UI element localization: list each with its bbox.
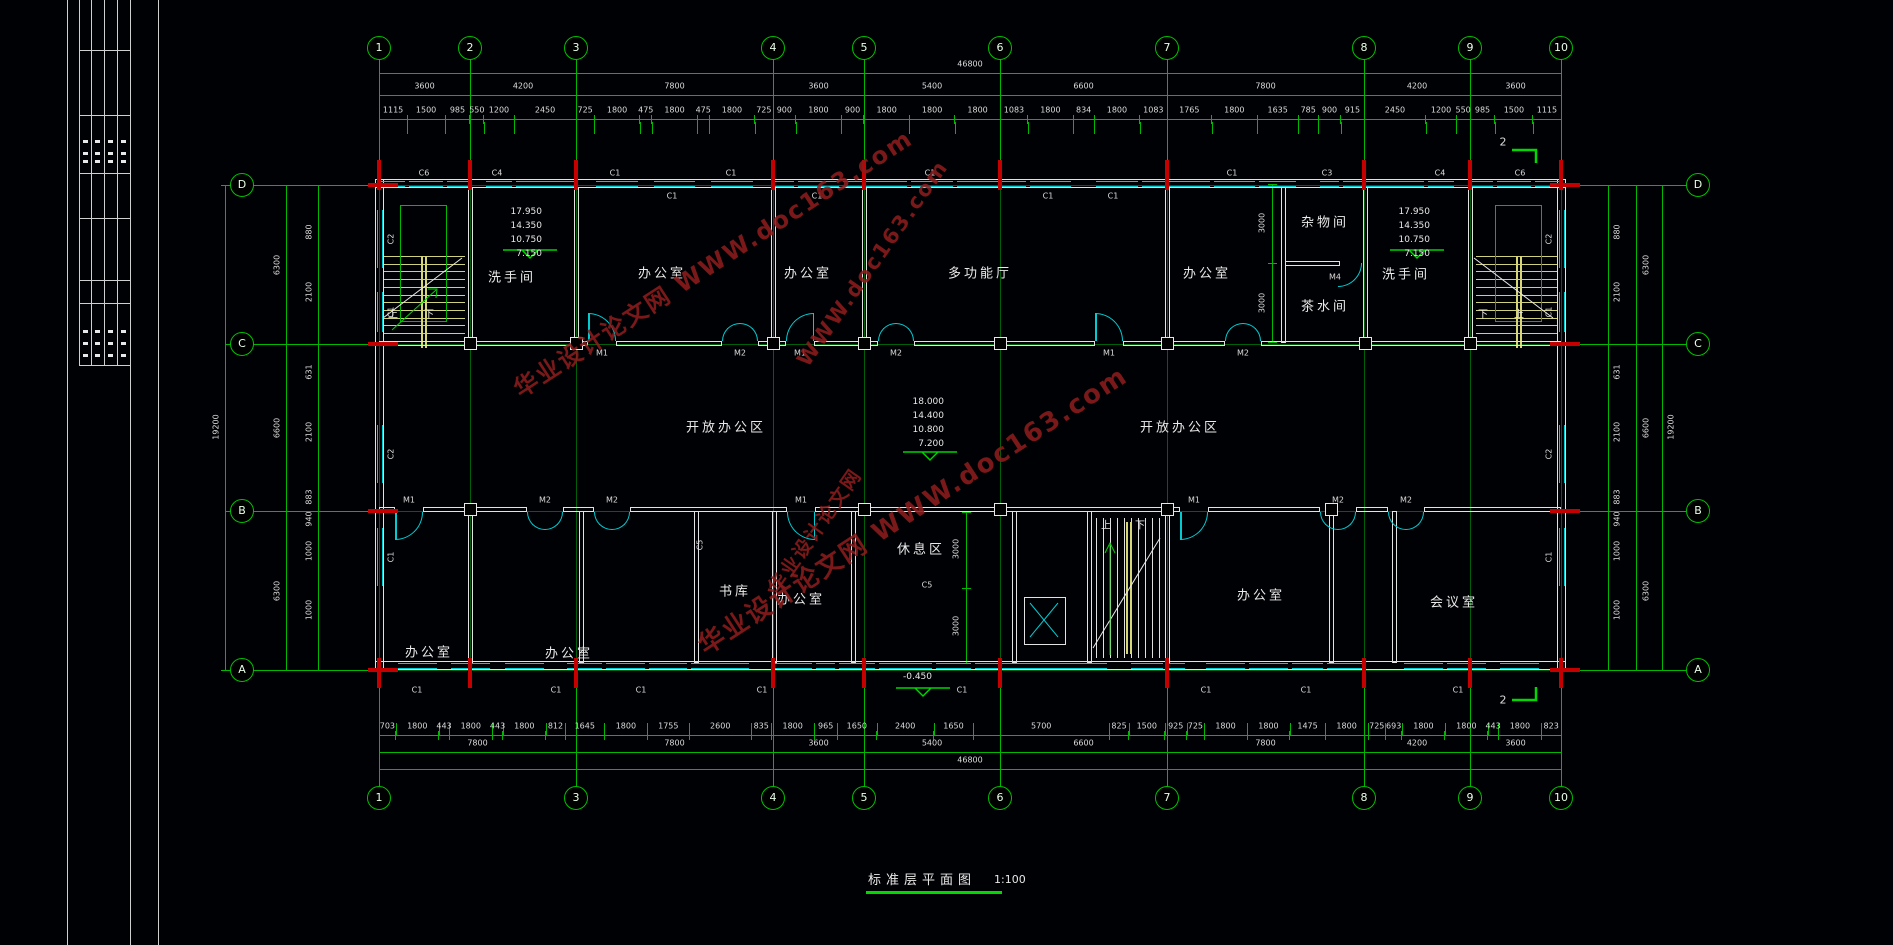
titleblock-line <box>79 303 130 304</box>
dim-small-bottom-label: 1645 <box>575 722 595 731</box>
column <box>1161 337 1174 350</box>
dim-overall-right-label: 19200 <box>1667 414 1676 439</box>
door-label: M1 <box>1188 496 1200 505</box>
dim-overall-bottom-label: 46800 <box>957 756 982 765</box>
dim-seg-left-label: 6600 <box>273 417 282 437</box>
drawing-title: 标准层平面图 <box>868 869 976 888</box>
window-label: C1 <box>1043 192 1054 201</box>
axis-bubble-top: 9 <box>1458 36 1482 60</box>
ext-line <box>814 723 815 735</box>
door-label: M2 <box>1332 496 1344 505</box>
axis-bubble-top: 4 <box>761 36 785 60</box>
column-marker <box>1362 658 1366 688</box>
aux-dim-label: 3000 <box>1258 293 1267 313</box>
column-marker <box>368 509 398 513</box>
stair-tread <box>1103 518 1104 658</box>
axis-bubble-bottom: 7 <box>1155 786 1179 810</box>
window-label: C1 <box>1201 686 1212 695</box>
titleblock-mark <box>108 330 113 333</box>
ext-line <box>484 122 485 134</box>
dim-small-bottom-label: 1800 <box>461 722 481 731</box>
dim-seg-top-tick <box>773 91 774 100</box>
axis-bubble-top: 3 <box>564 36 588 60</box>
room-label: 办公室 <box>784 263 832 282</box>
titleblock-line <box>91 0 92 365</box>
ext-line <box>594 122 595 134</box>
dim-small-top-label: 785 <box>1301 106 1316 115</box>
window <box>1366 181 1424 187</box>
door-arc <box>527 512 545 530</box>
level-value: 14.400 <box>913 411 945 421</box>
door-arc <box>722 323 740 341</box>
door-arc <box>545 512 563 530</box>
titleblock-line <box>79 115 130 116</box>
titleblock-mark <box>95 330 100 333</box>
window <box>398 663 437 669</box>
dim-seg-bottom-line <box>379 752 1561 753</box>
titleblock-line <box>79 218 130 219</box>
axis-bubble-left: B <box>230 499 254 523</box>
dim-overall-top-tick <box>1561 69 1562 78</box>
column-marker <box>1165 658 1169 688</box>
window <box>447 181 468 187</box>
drawing-scale: 1:100 <box>994 873 1026 886</box>
window <box>1559 528 1565 586</box>
dim-small-top-label: 1800 <box>664 106 684 115</box>
window-label: C1 <box>1545 552 1554 563</box>
column <box>767 337 780 350</box>
level-value: 7.150 <box>1404 249 1430 259</box>
window <box>1259 181 1296 187</box>
titleblock-mark <box>83 160 88 163</box>
wall-B-segment <box>1424 507 1561 512</box>
dim-small-top-label: 1800 <box>1107 106 1127 115</box>
dim-seg-top-tick <box>1561 91 1562 100</box>
dim-small-right-label: 1000 <box>1613 600 1622 620</box>
interior-wall <box>1468 187 1473 343</box>
dim-small-top-label: 2450 <box>1385 106 1405 115</box>
room-label: 多功能厅 <box>948 263 1012 282</box>
titleblock-line <box>79 365 130 366</box>
window <box>516 181 574 187</box>
dim-overall-bottom-tick <box>1561 765 1562 774</box>
ext-line <box>877 723 878 735</box>
door-arc <box>1095 313 1123 341</box>
wall-B-segment <box>1356 507 1388 512</box>
column-marker <box>1550 668 1580 672</box>
interior-wall <box>468 187 473 343</box>
column-marker <box>1362 160 1366 190</box>
dim-small-left-label: 2100 <box>305 282 314 302</box>
column-marker <box>1550 509 1580 513</box>
window-label: C1 <box>412 686 423 695</box>
room-label: 开放办公区 <box>686 417 766 436</box>
column <box>464 337 477 350</box>
level-value: 17.950 <box>1399 207 1431 217</box>
ext-line <box>1247 723 1248 735</box>
column-marker <box>771 160 775 190</box>
stair-tread <box>1152 518 1153 658</box>
dim-small-bottom-label: 1800 <box>407 722 427 731</box>
window-label: C1 <box>387 552 396 563</box>
column-marker <box>1468 658 1472 688</box>
wall-C-segment <box>1123 341 1225 346</box>
dim-small-right-label: 880 <box>1613 224 1622 239</box>
door-arc <box>1243 323 1261 341</box>
dim-small-right-label: 2100 <box>1613 282 1622 302</box>
dim-small-bottom-label: 725 <box>1188 722 1203 731</box>
room-label: 休息区 <box>897 539 945 558</box>
window-label: C1 <box>551 686 562 695</box>
dim-seg-top-tick <box>1000 91 1001 100</box>
interior-wall <box>1285 261 1340 266</box>
axis-bubble-top: 5 <box>852 36 876 60</box>
dim-small-top-label: 475 <box>638 106 653 115</box>
ext-line <box>1495 122 1496 134</box>
dim-seg-top-tick <box>1167 91 1168 100</box>
dim-small-left <box>318 185 319 670</box>
dim-small-bottom-label: 1800 <box>1510 722 1530 731</box>
dim-small-top-label: 915 <box>1345 106 1360 115</box>
ext-line <box>689 723 690 735</box>
dim-small-bottom-label: 1800 <box>1456 722 1476 731</box>
door-label: M2 <box>890 349 902 358</box>
dim-seg-right-label: 6300 <box>1642 580 1651 600</box>
window <box>377 292 383 332</box>
titleblock-line <box>117 0 118 365</box>
axis-bubble-top: 8 <box>1352 36 1376 60</box>
axis-bubble-top: 7 <box>1155 36 1179 60</box>
interior-wall <box>1012 511 1017 663</box>
stair-rail <box>1516 256 1518 348</box>
window <box>1002 181 1025 187</box>
stair-tread <box>1124 518 1125 658</box>
titleblock-line <box>79 280 130 281</box>
window-label: C6 <box>419 169 430 178</box>
ext-line <box>1566 344 1666 345</box>
dim-small-bottom-label: 812 <box>548 722 563 731</box>
dim-seg-top-label: 7800 <box>1255 82 1275 91</box>
window-label: C1 <box>1108 192 1119 201</box>
stair-tread <box>1138 518 1139 658</box>
dim-seg-top-label: 4200 <box>1407 82 1427 91</box>
window <box>866 181 907 187</box>
titleblock-mark <box>121 160 126 163</box>
dim-small-top-label: 985 <box>450 106 465 115</box>
window <box>1249 663 1288 669</box>
wall-C-segment <box>616 341 722 346</box>
aux-dim-label: 3000 <box>1258 213 1267 233</box>
titleblock-mark <box>121 342 126 345</box>
axis-bubble-bottom: 5 <box>852 786 876 810</box>
wall-B-segment <box>1208 507 1320 512</box>
dim-small-bottom-label: 1475 <box>1297 722 1317 731</box>
door-arc <box>594 512 612 530</box>
ext-line <box>755 122 756 134</box>
ext-line <box>647 723 648 735</box>
ext-line <box>841 122 842 134</box>
stair-tread <box>1096 518 1097 658</box>
dim-small-top-label: 985 <box>1475 106 1490 115</box>
dim-seg-top-label: 4200 <box>513 82 533 91</box>
door-arc <box>1338 512 1356 530</box>
titleblock-mark <box>83 152 88 155</box>
ext-line <box>1566 670 1666 671</box>
level-value: 10.800 <box>913 425 945 435</box>
t <box>1268 263 1277 264</box>
ext-line <box>407 122 408 134</box>
level-value: 17.950 <box>511 207 543 217</box>
t <box>962 588 971 589</box>
dim-small-top-label: 550 <box>1455 106 1470 115</box>
axis-bubble-top: 6 <box>988 36 1012 60</box>
room-label: 洗手间 <box>1382 264 1430 283</box>
window-label: C5 <box>922 581 933 590</box>
dim-seg-bottom-tick <box>1167 748 1168 757</box>
window <box>1559 292 1565 332</box>
ext-line <box>1341 122 1342 134</box>
dim-small-bottom-label: 1800 <box>1215 722 1235 731</box>
column-marker <box>998 160 1002 190</box>
ext-line <box>640 122 641 134</box>
dim-small-bottom-label: 443 <box>490 722 505 731</box>
ext-line <box>1094 122 1095 134</box>
door-arc <box>612 512 630 530</box>
level-value: -0.450 <box>903 672 932 682</box>
ext-line <box>1257 122 1258 134</box>
window-label: C2 <box>387 234 396 245</box>
dim-small-bottom-label: 725 <box>1369 722 1384 731</box>
aux-dim-label: 3000 <box>952 539 961 559</box>
titleblock-mark <box>108 152 113 155</box>
titleblock-mark <box>83 140 88 143</box>
section-marker-label: 2 <box>1500 694 1507 707</box>
titleblock-mark <box>83 342 88 345</box>
ext-line <box>1129 723 1130 735</box>
window-label: C1 <box>1453 686 1464 695</box>
titleblock-mark <box>108 342 113 345</box>
sheet-frame-line <box>130 0 131 945</box>
stair-rail <box>1130 522 1132 654</box>
window <box>596 181 637 187</box>
window <box>773 663 812 669</box>
dim-small-top-label: 1083 <box>1143 106 1163 115</box>
window <box>775 181 794 187</box>
dim-seg-right-label: 6300 <box>1642 254 1651 274</box>
titleblock-line <box>104 0 105 365</box>
level-value: 18.000 <box>913 397 945 407</box>
dim-small-left-label: 940 <box>305 511 314 526</box>
dim-small-bottom-label: 1755 <box>658 722 678 731</box>
dim-small-bottom-label: 825 <box>1111 722 1126 731</box>
door-arc <box>1225 323 1243 341</box>
stair-flight-outline <box>400 205 447 322</box>
axis-bubble-left: A <box>230 658 254 682</box>
window-label: C1 <box>667 192 678 201</box>
stair-flight-outline <box>1495 205 1542 322</box>
window <box>1343 181 1362 187</box>
window <box>1428 181 1454 187</box>
dim-small-right-label: 940 <box>1613 511 1622 526</box>
dim-overall-left <box>225 185 226 670</box>
dim-small-top-label: 1500 <box>1504 106 1524 115</box>
window <box>1030 181 1071 187</box>
door-arc <box>1338 263 1362 287</box>
room-label: 洗手间 <box>488 267 536 286</box>
level-value: 14.350 <box>1399 221 1431 231</box>
room-label: 茶水间 <box>1301 296 1349 315</box>
dim-small-top-label: 550 <box>469 106 484 115</box>
stair-rail <box>1126 522 1128 654</box>
axis-bubble-bottom: 10 <box>1549 786 1573 810</box>
window-label: C1 <box>1301 686 1312 695</box>
dim-small-top-label: 1800 <box>1224 106 1244 115</box>
column-marker <box>368 668 398 672</box>
window <box>1447 663 1486 669</box>
sheet-frame-line <box>158 0 159 945</box>
window <box>1206 663 1245 669</box>
window-label: C2 <box>387 449 396 460</box>
dim-seg-bottom-label: 4200 <box>1407 739 1427 748</box>
door-label: M2 <box>606 496 618 505</box>
interior-wall <box>574 187 579 343</box>
window-label: C3 <box>1322 169 1333 178</box>
window <box>816 663 835 669</box>
dim-seg-bottom-label: 7800 <box>467 739 487 748</box>
column <box>1161 503 1174 516</box>
window <box>1559 425 1565 483</box>
stair-tread <box>1159 518 1160 658</box>
column-marker <box>862 658 866 688</box>
dim-small-left-label: 880 <box>305 224 314 239</box>
dim-small-bottom-label: 443 <box>436 722 451 731</box>
dim-overall-bottom-line <box>379 769 1561 770</box>
door-arc <box>395 512 423 540</box>
axis-bubble-left: C <box>230 332 254 356</box>
wall-B-segment <box>563 507 594 512</box>
window <box>649 663 687 669</box>
window-label: C5 <box>696 540 705 551</box>
column-marker <box>1468 160 1472 190</box>
window <box>606 663 645 669</box>
column-marker <box>771 658 775 688</box>
dim-small-top-label: 1800 <box>1040 106 1060 115</box>
window <box>1169 181 1210 187</box>
door-arc <box>878 323 896 341</box>
dim-seg-bottom-label: 3600 <box>808 739 828 748</box>
dim-small-top-label: 900 <box>845 106 860 115</box>
stair-down-label: 下 <box>1478 306 1488 321</box>
dim-seg-top-tick <box>1470 91 1471 100</box>
dim-small-top-label: 475 <box>696 106 711 115</box>
ext-line <box>604 723 605 735</box>
titleblock-line <box>79 173 130 174</box>
dim-seg-bottom-label: 6600 <box>1073 739 1093 748</box>
cad-viewport: 123456789101345678910DDCCBBAA46800360042… <box>0 0 1893 945</box>
dim-seg-bottom-tick <box>1000 748 1001 757</box>
stair-rail <box>1520 256 1522 348</box>
dim-small-top-label: 1800 <box>967 106 987 115</box>
dim-small-top-label: 1200 <box>489 106 509 115</box>
wall-C-segment <box>1261 341 1561 346</box>
stair-rail <box>425 256 427 348</box>
ext-line <box>1165 723 1166 735</box>
dim-seg-right <box>1636 185 1637 670</box>
room-label: 办公室 <box>1237 585 1285 604</box>
column <box>994 503 1007 516</box>
dim-small-top-label: 2450 <box>535 106 555 115</box>
dim-small-top-label: 1800 <box>607 106 627 115</box>
column-marker <box>998 658 1002 688</box>
window <box>377 425 383 483</box>
window-label: C1 <box>636 686 647 695</box>
ext-line <box>1028 122 1029 134</box>
interior-wall <box>468 511 473 663</box>
window <box>879 663 932 669</box>
window <box>567 663 602 669</box>
ext-line <box>652 122 653 134</box>
window-label: C2 <box>1545 234 1554 245</box>
stair-tread <box>1117 518 1118 658</box>
titleblock-mark <box>95 342 100 345</box>
dim-small-top-label: 834 <box>1076 106 1091 115</box>
sheet-frame-line <box>67 0 68 945</box>
dim-seg-bottom-label: 7800 <box>1255 739 1275 748</box>
dim-seg-top-label: 5400 <box>922 82 942 91</box>
axis-bubble-right: A <box>1686 658 1710 682</box>
dim-small-left-label: 2100 <box>305 422 314 442</box>
room-label: 办公室 <box>1183 263 1231 282</box>
dim-seg-top-label: 3600 <box>414 82 434 91</box>
axis-bubble-bottom: 3 <box>564 786 588 810</box>
dim-small-bottom-label: 1800 <box>1413 722 1433 731</box>
ext-line <box>837 723 838 735</box>
dim-small-right-label: 631 <box>1613 364 1622 379</box>
level-value: 7.150 <box>516 249 542 259</box>
axis-bubble-top: 1 <box>367 36 391 60</box>
room-label: 开放办公区 <box>1140 417 1220 436</box>
axis-bubble-bottom: 1 <box>367 786 391 810</box>
ext-line <box>751 723 752 735</box>
dim-small-top-label: 900 <box>1322 106 1337 115</box>
level-value: 10.750 <box>1399 235 1431 245</box>
door-label: M2 <box>1237 349 1249 358</box>
axis-bubble-bottom: 8 <box>1352 786 1376 810</box>
titleblock-mark <box>83 354 88 357</box>
dim-small-bottom-line <box>379 735 1561 736</box>
wall-B-segment <box>630 507 787 512</box>
dim-overall-top-tick <box>379 69 380 78</box>
window-label: C1 <box>1545 307 1554 318</box>
window-label: C1 <box>957 686 968 695</box>
door-arc <box>1406 512 1424 530</box>
dim-small-bottom-label: 1650 <box>943 722 963 731</box>
window-label: C6 <box>1515 169 1526 178</box>
window-label: C1 <box>1227 169 1238 178</box>
window <box>654 181 695 187</box>
interior-wall <box>1392 511 1397 663</box>
dim-small-bottom-label: 2400 <box>895 722 915 731</box>
interior-wall <box>579 511 584 663</box>
dim-overall-left-label: 19200 <box>212 414 221 439</box>
stair-up-label: 上 <box>1101 517 1111 532</box>
window <box>1292 663 1323 669</box>
dim-seg-right-label: 6600 <box>1642 417 1651 437</box>
column <box>858 337 871 350</box>
door-label: M2 <box>1400 496 1412 505</box>
ext-line <box>973 723 974 735</box>
window <box>957 181 998 187</box>
